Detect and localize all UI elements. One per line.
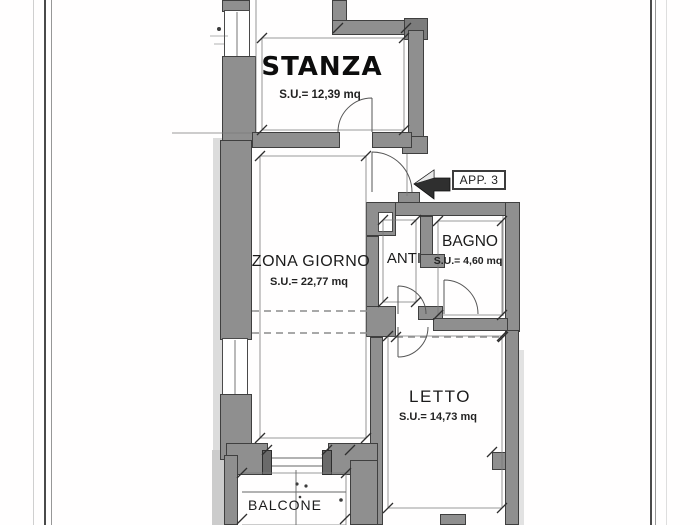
- room-label-stanza: STANZA: [261, 52, 382, 82]
- unit-label: APP. 3: [460, 173, 499, 187]
- sheet-border-line: [666, 0, 667, 525]
- room-label-zona-giorno: ZONA GIORNO: [252, 253, 370, 271]
- room-label-balcone: BALCONE: [248, 497, 322, 513]
- wall-segment: [505, 202, 520, 332]
- shaft-inset: [378, 212, 393, 232]
- sheet-border-line: [33, 0, 34, 525]
- wall-segment: [224, 455, 238, 525]
- unit-label-box: APP. 3: [452, 170, 506, 190]
- sheet-border-line: [51, 0, 52, 525]
- wall-segment: [440, 514, 466, 525]
- scan-shadow: [519, 350, 524, 525]
- balcony-door-jamb: [322, 450, 332, 475]
- wall-segment: [505, 330, 519, 525]
- room-area-stanza: S.U.= 12,39 mq: [279, 89, 361, 101]
- sheet-border-line: [44, 0, 46, 525]
- scan-shadow: [212, 450, 224, 525]
- wall-segment: [252, 132, 340, 148]
- sheet-border-line: [655, 0, 656, 525]
- wall-segment: [220, 140, 252, 340]
- window-stanza-left: [224, 10, 250, 58]
- wall-segment: [332, 20, 410, 35]
- wall-segment: [372, 132, 412, 148]
- door-arc-entry: [372, 152, 412, 192]
- room-label-letto: LETTO: [409, 387, 471, 407]
- door-arc-bagno: [444, 280, 478, 314]
- door-arc-letto: [398, 327, 428, 357]
- room-area-letto: S.U.= 14,73 mq: [399, 411, 477, 423]
- wall-segment: [222, 56, 256, 144]
- room-label-anti: ANTI: [387, 250, 421, 267]
- wall-segment: [350, 460, 378, 525]
- room-label-bagno: BAGNO: [442, 233, 498, 251]
- window-zona-left: [222, 338, 248, 396]
- sheet-border-line: [650, 0, 652, 525]
- wall-segment: [433, 318, 508, 331]
- door-arc-stanza: [338, 98, 372, 132]
- wall-segment: [366, 306, 396, 337]
- balcony-door-jamb: [262, 450, 272, 475]
- wall-segment: [408, 30, 424, 144]
- room-area-zona-giorno: S.U.= 22,77 mq: [270, 276, 348, 288]
- wall-segment: [492, 452, 506, 470]
- floorplan-sheet: APP. 3 STANZA S.U.= 12,39 mq ZONA GIORNO…: [0, 0, 700, 525]
- room-area-bagno: S.U.= 4,60 mq: [434, 255, 503, 267]
